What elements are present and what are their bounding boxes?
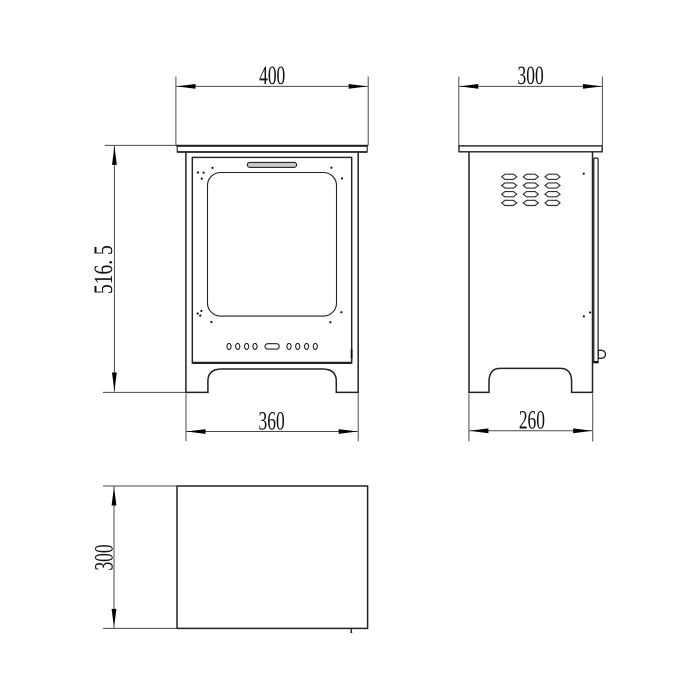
- svg-text:516. 5: 516. 5: [90, 245, 118, 294]
- svg-text:260: 260: [519, 405, 545, 434]
- svg-text:400: 400: [259, 61, 285, 90]
- svg-text:300: 300: [89, 544, 118, 570]
- svg-text:360: 360: [259, 406, 285, 435]
- svg-text:300: 300: [518, 61, 544, 90]
